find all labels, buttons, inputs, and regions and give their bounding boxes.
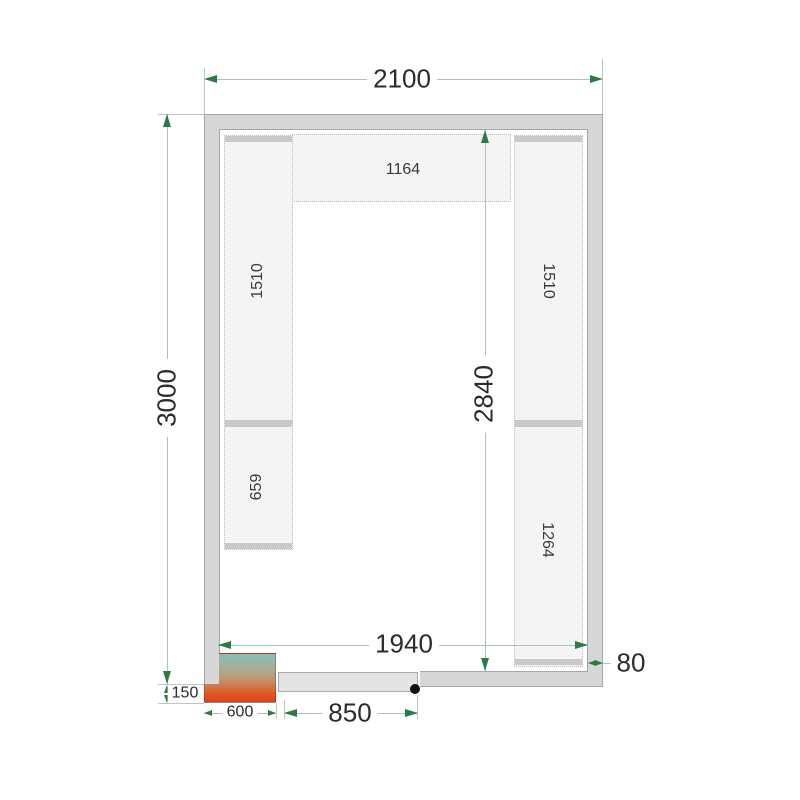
arrow-right-icon: [590, 75, 603, 83]
shelf-cap: [515, 136, 582, 142]
dim-top-width-value: 2100: [367, 65, 437, 92]
extension-line: [158, 703, 204, 704]
door-panel: [278, 672, 418, 692]
shelf-top-label: 1164: [386, 161, 420, 179]
dim-inner-width-value: 1940: [369, 630, 439, 657]
shelf-cap: [225, 420, 292, 427]
arrow-right-icon: [405, 709, 418, 717]
shelf-cap: [225, 136, 292, 142]
arrow-up-icon: [163, 114, 171, 127]
arrow-right-icon: [595, 660, 603, 666]
arrow-up-icon: [481, 130, 489, 143]
arrow-left-icon: [284, 709, 297, 717]
arrow-right-icon: [268, 710, 276, 716]
dim-unit-offset-value: 150: [168, 686, 203, 703]
shelf-cap: [515, 659, 582, 665]
outer-wall-bottom-left-corner: [204, 653, 219, 684]
door-hinge-dot: [410, 684, 420, 694]
shelf-cap: [225, 543, 292, 549]
shelf-left-lower-label: 659: [248, 474, 266, 501]
arrow-right-icon: [575, 641, 588, 649]
dim-unit-width-value: 600: [223, 705, 258, 722]
dim-wall-thickness-value: 80: [611, 649, 652, 676]
shelf-right-lower-label: 1264: [538, 522, 556, 558]
shelf-left-upper-label: 1510: [249, 263, 267, 299]
arrow-left-icon: [204, 710, 212, 716]
shelf-right: [514, 135, 583, 667]
dim-inner-height-value: 2840: [470, 355, 497, 433]
arrow-down-icon: [163, 671, 171, 684]
extension-line: [276, 703, 277, 719]
arrow-left-icon: [204, 75, 217, 83]
extension-line: [602, 59, 603, 114]
dim-left-height-value: 3000: [153, 359, 180, 437]
dim-door-width-value: 850: [322, 699, 377, 726]
shelf-cap: [515, 420, 582, 427]
cold-room-floor-plan: 1164 1510 659 1510 1264 2100 3000 2840 1…: [0, 0, 800, 800]
arrow-left-icon: [218, 641, 231, 649]
arrow-down-icon: [481, 658, 489, 671]
shelf-right-upper-label: 1510: [539, 263, 557, 299]
